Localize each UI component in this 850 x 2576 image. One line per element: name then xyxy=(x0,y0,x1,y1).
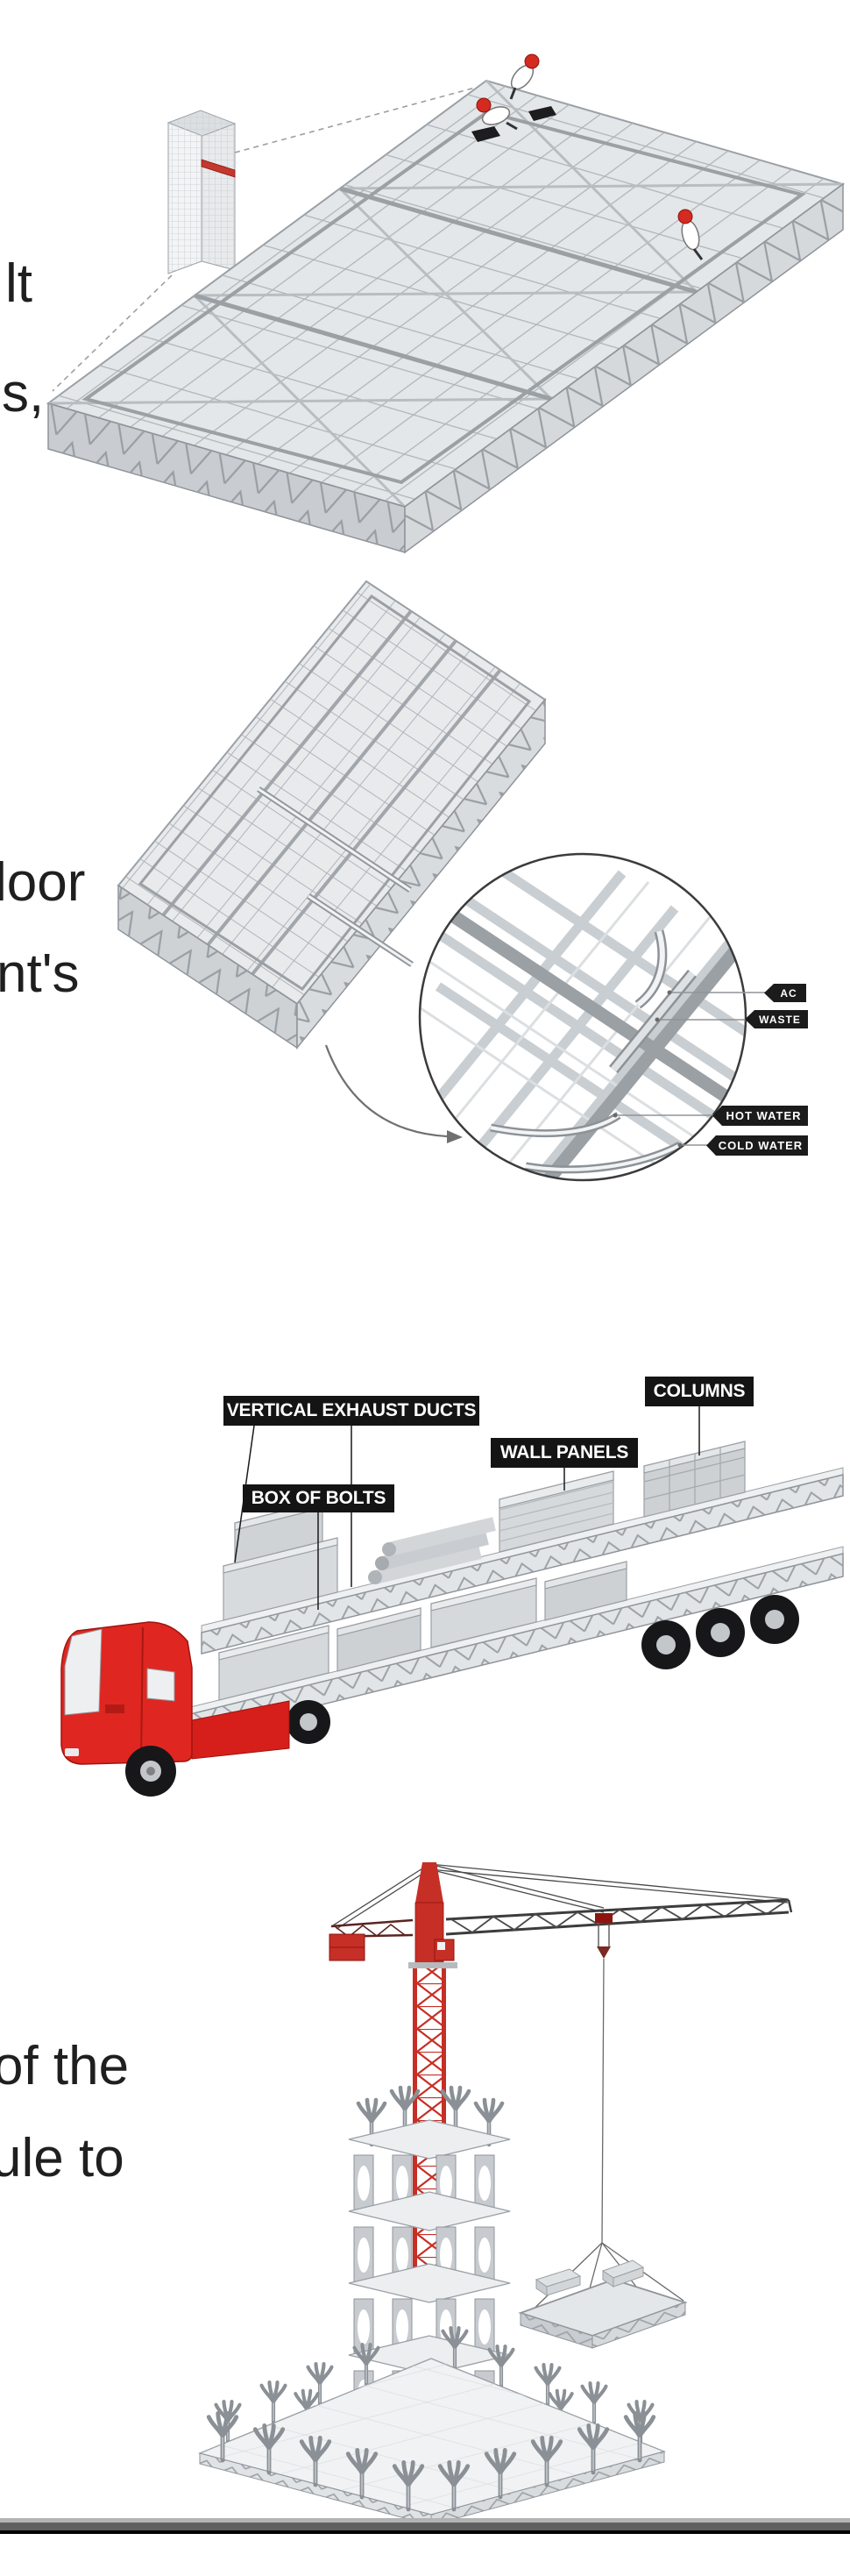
callout-cold-water: COLD WATER xyxy=(706,1135,808,1156)
footer-bar-dark xyxy=(0,2523,850,2530)
side-window xyxy=(147,1669,174,1701)
illustrations-canvas xyxy=(0,0,850,2576)
module-underside-figure xyxy=(118,581,766,1223)
callout-hot-water: HOT WATER xyxy=(712,1106,808,1126)
counter-jib xyxy=(329,1920,413,1960)
red-helmet xyxy=(525,54,539,68)
floor-module-assembly-figure xyxy=(48,54,843,552)
crane-jib xyxy=(446,1900,791,1934)
document-page: lt s, loor nt's of the ule to xyxy=(0,0,850,2576)
red-helmet xyxy=(678,210,692,224)
tower-crane-figure xyxy=(200,1862,791,2525)
delivery-truck-figure xyxy=(61,1406,843,1797)
hoist-cable xyxy=(602,1959,604,2243)
label-vertical-exhaust-ducts: VERTICAL EXHAUST DUCTS xyxy=(223,1396,479,1426)
magnifier-circle xyxy=(412,829,758,1223)
mirror xyxy=(105,1704,124,1713)
footer-bar-black xyxy=(0,2530,850,2534)
label-box-of-bolts: BOX OF BOLTS xyxy=(243,1484,394,1512)
label-columns: COLUMNS xyxy=(645,1377,754,1406)
windshield xyxy=(65,1629,102,1715)
label-wall-panels: WALL PANELS xyxy=(491,1438,638,1468)
skyscraper-inset xyxy=(168,110,235,274)
red-helmet xyxy=(477,98,491,112)
hanging-floor-panel xyxy=(521,2243,685,2348)
trolley-and-hook xyxy=(595,1913,613,2243)
slew-platform xyxy=(408,1962,457,1968)
floor-truss-deck xyxy=(48,81,843,552)
headlight xyxy=(65,1748,79,1756)
callout-waste: WASTE xyxy=(745,1010,808,1028)
crane-cables xyxy=(333,1864,788,1929)
